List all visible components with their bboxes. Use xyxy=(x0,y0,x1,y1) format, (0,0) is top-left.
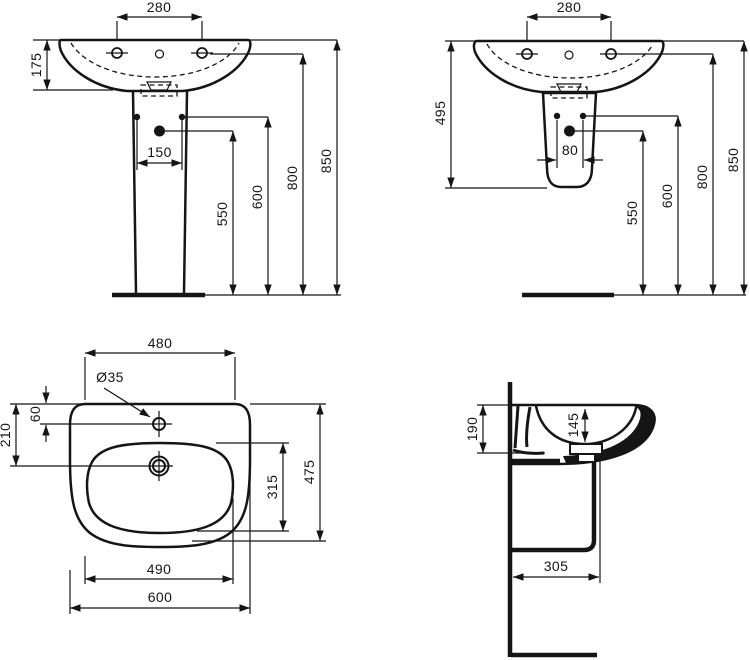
waste-outlet-step xyxy=(570,444,602,454)
semi-pedestal-outline xyxy=(543,93,596,187)
dim-label-600: 600 xyxy=(659,184,675,209)
dim-label-305: 305 xyxy=(544,558,569,574)
dim-label-600: 600 xyxy=(148,589,173,605)
trap-outlet-point xyxy=(564,126,575,137)
basin-outline xyxy=(60,40,251,91)
trap-outlet-point xyxy=(154,126,165,137)
dim-label-490: 490 xyxy=(147,561,172,577)
fixing-hole-right xyxy=(580,113,586,119)
fixing-hole-left xyxy=(554,113,560,119)
dim-label-280: 280 xyxy=(147,0,172,15)
dim-label-175: 175 xyxy=(28,53,44,78)
dim-label-475: 475 xyxy=(301,460,317,485)
dim-label-495: 495 xyxy=(432,101,448,126)
dim-label-210: 210 xyxy=(0,423,13,448)
dim-label-145: 145 xyxy=(565,413,581,438)
fixing-hole-left xyxy=(134,114,140,120)
dim-label-280: 280 xyxy=(557,0,582,15)
dim-label-80: 80 xyxy=(562,142,578,158)
pedestal-left-edge xyxy=(133,92,136,294)
dim-label-800: 800 xyxy=(284,166,300,191)
dim-label-850: 850 xyxy=(318,149,334,174)
drawing-svg: 280 175 150 550 600 800 xyxy=(0,0,750,660)
dim-label-600: 600 xyxy=(249,185,265,210)
dim-label-550: 550 xyxy=(624,201,640,226)
dim-label-315: 315 xyxy=(264,475,280,500)
view-plan: 480 Ø35 60 210 315 475 490 xyxy=(0,335,326,614)
pedestal-right-edge xyxy=(184,92,187,294)
dim-label-190: 190 xyxy=(464,417,480,442)
dim-label-550: 550 xyxy=(214,202,230,227)
view-front-semipedestal: 280 80 495 550 600 800 xyxy=(432,0,746,295)
fixing-hole-right xyxy=(179,114,185,120)
semi-pedestal-profile xyxy=(512,462,594,550)
dim-label-60: 60 xyxy=(27,406,43,422)
dim-label-150: 150 xyxy=(147,144,172,160)
washbasin-technical-drawing: 280 175 150 550 600 800 xyxy=(0,0,750,660)
view-side-section: 190 145 305 xyxy=(464,382,655,657)
waste-outlet-step2 xyxy=(578,454,595,462)
dim-label-480: 480 xyxy=(148,335,173,351)
dim-label-hole-diameter: Ø35 xyxy=(96,369,124,385)
dim-label-800: 800 xyxy=(694,165,710,190)
view-front-pedestal: 280 175 150 550 600 800 xyxy=(28,0,341,295)
dim-label-850: 850 xyxy=(725,148,741,173)
